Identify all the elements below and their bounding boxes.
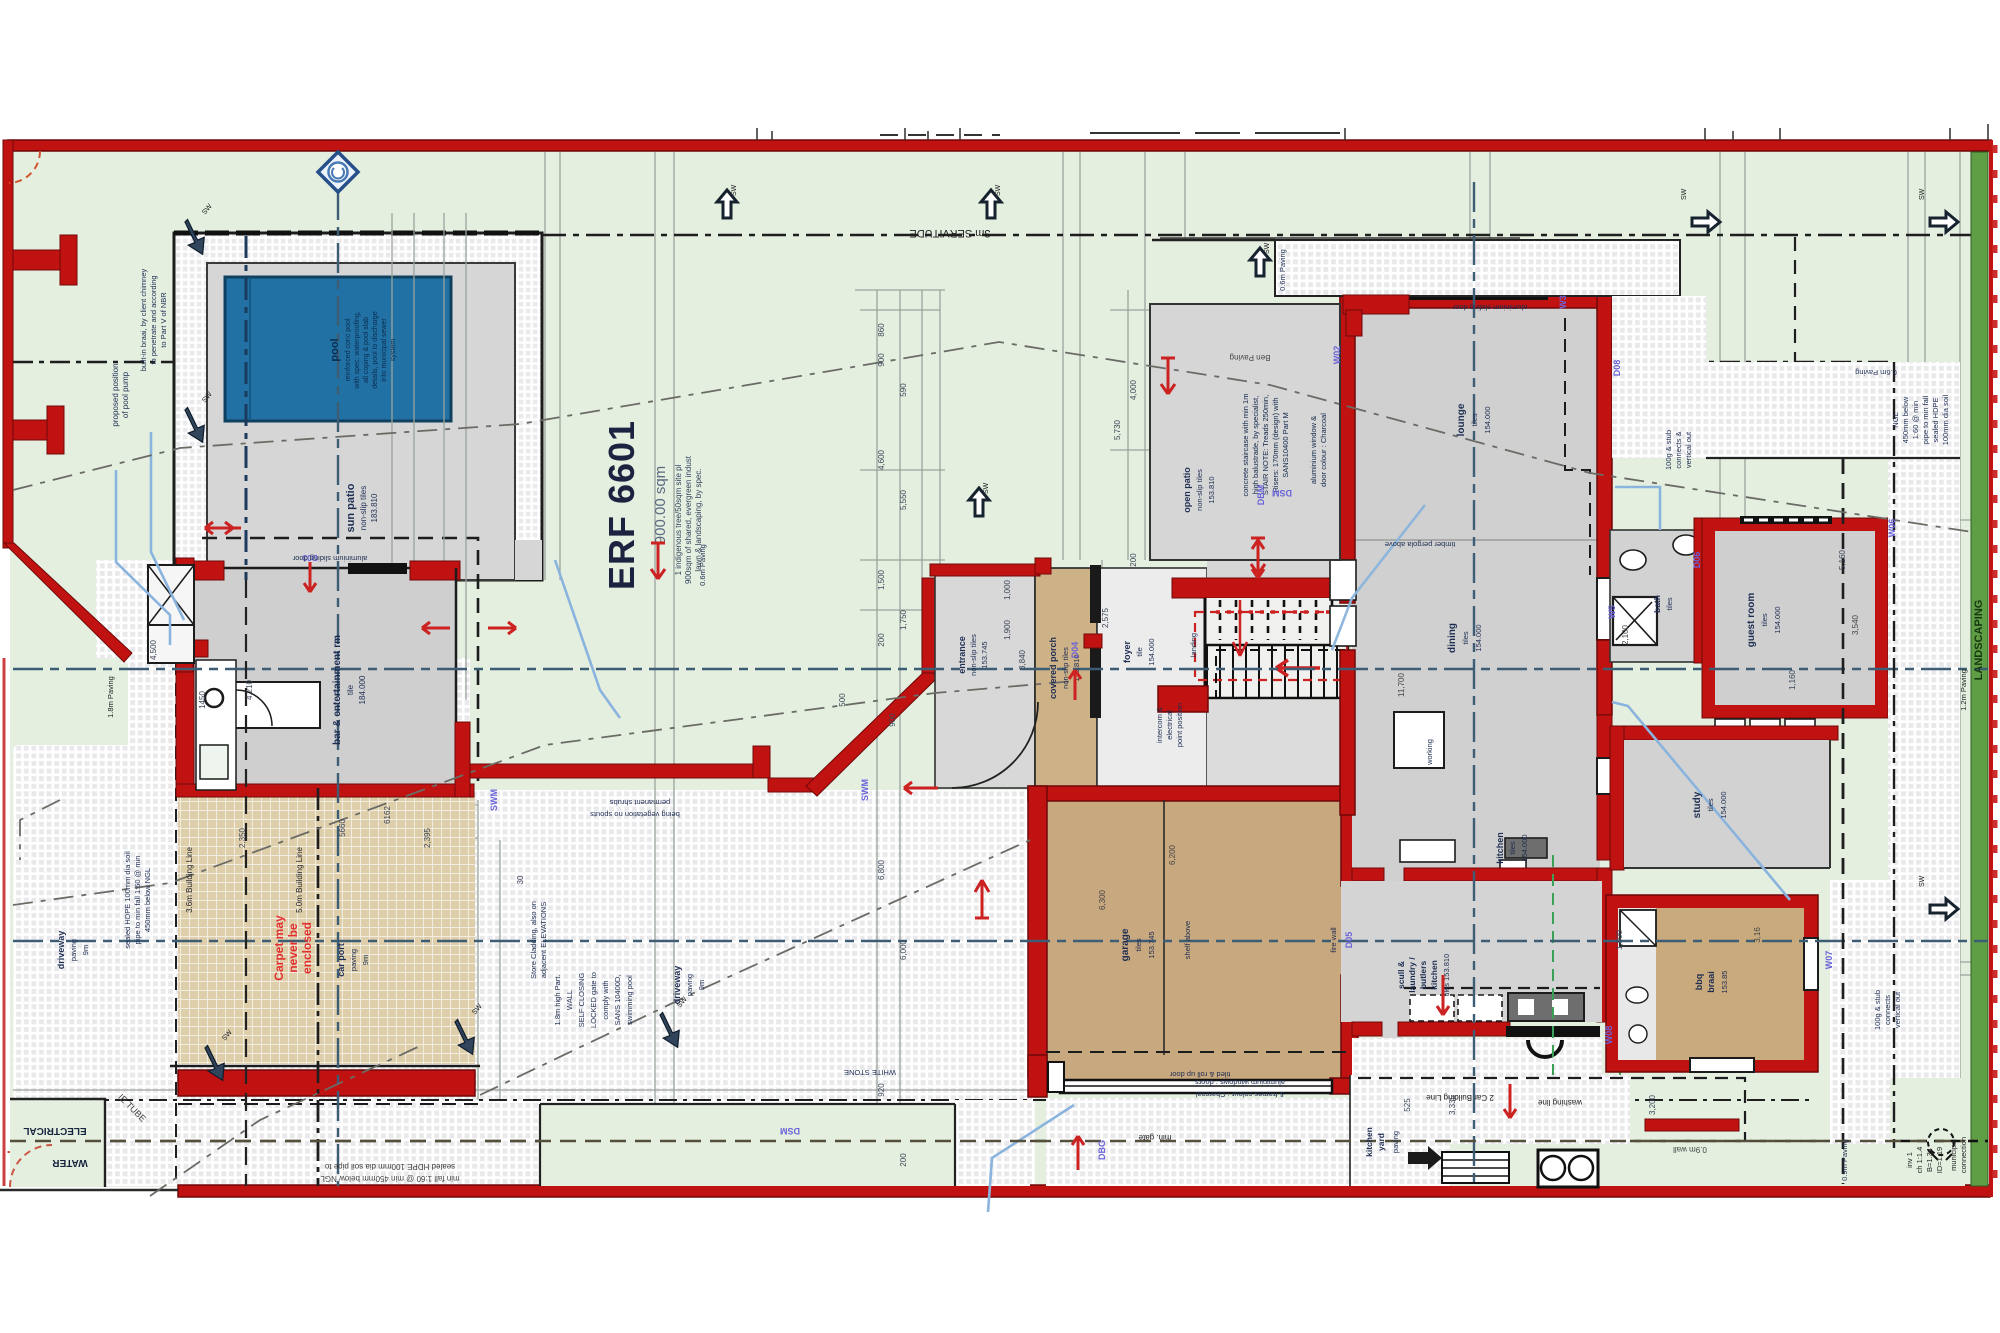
svg-text:5660: 5660 [338, 819, 347, 837]
svg-text:tiles: tiles [1706, 798, 1715, 812]
svg-text:450mm below NGL: 450mm below NGL [143, 868, 152, 932]
svg-text:proposed position: proposed position [111, 363, 120, 426]
svg-text:W3: W3 [1558, 295, 1568, 309]
svg-text:built-in braai, by client chim: built-in braai, by client chimney [139, 268, 148, 371]
svg-text:W5: W5 [1607, 605, 1617, 619]
svg-text:tiles: tiles [1760, 613, 1769, 627]
svg-text:kitchen: kitchen [1495, 832, 1505, 864]
svg-text:WALL: WALL [565, 990, 574, 1010]
svg-text:scull &: scull & [1396, 961, 1406, 989]
svg-text:200: 200 [1129, 553, 1138, 567]
svg-text:open patio: open patio [1182, 467, 1192, 513]
svg-text:electrical: electrical [1165, 710, 1174, 740]
svg-text:details, pool to discharge: details, pool to discharge [372, 311, 379, 389]
svg-text:sealed HDPE: sealed HDPE [1931, 397, 1940, 442]
svg-text:500: 500 [838, 693, 847, 707]
svg-text:aluminium sliding door: aluminium sliding door [292, 554, 367, 563]
svg-text:D06: D06 [1692, 552, 1702, 569]
svg-text:WHITE STONE: WHITE STONE [844, 1068, 896, 1077]
svg-text:pipe to min fall: pipe to min fall [1921, 395, 1930, 444]
svg-text:covered porch: covered porch [1048, 637, 1058, 699]
svg-text:tiles: tiles [1665, 597, 1674, 611]
svg-text:of pool pump: of pool pump [121, 371, 130, 418]
svg-text:braai: braai [1706, 971, 1716, 993]
svg-text:3m SERVITUDE: 3m SERVITUDE [909, 227, 990, 239]
svg-text:being vegetation no spouts: being vegetation no spouts [590, 810, 680, 819]
svg-text:shelf above: shelf above [1183, 921, 1192, 959]
svg-text:183.810: 183.810 [370, 493, 379, 522]
svg-text:30: 30 [516, 875, 525, 884]
svg-text:W08: W08 [1604, 1026, 1614, 1045]
svg-text:kitchen: kitchen [1429, 960, 1439, 990]
svg-text:100mm dia soil: 100mm dia soil [1941, 394, 1950, 445]
svg-text:900: 900 [877, 353, 886, 367]
svg-text:SWM: SWM [860, 779, 870, 801]
svg-text:tiles: tiles [1461, 631, 1470, 645]
svg-text:9m: 9m [361, 955, 370, 965]
svg-text:B=1.34: B=1.34 [1925, 1148, 1934, 1172]
svg-text:sun patio: sun patio [345, 483, 357, 532]
svg-text:fire wall: fire wall [1329, 927, 1338, 953]
svg-text:paving: paving [349, 949, 358, 971]
svg-text:garage: garage [1120, 928, 1131, 961]
svg-text:STAIR NOTE: Treads 250min,: STAIR NOTE: Treads 250min, [1261, 395, 1270, 495]
svg-text:paving: paving [69, 939, 78, 961]
svg-text:0.9m Paving: 0.9m Paving [1840, 1139, 1849, 1181]
svg-text:1450: 1450 [198, 691, 207, 709]
svg-text:1,500: 1,500 [877, 569, 886, 590]
svg-text:525: 525 [1403, 1098, 1412, 1112]
svg-text:860: 860 [877, 323, 886, 337]
svg-text:SELF CLOSING: SELF CLOSING [577, 973, 586, 1028]
svg-text:with spec. waterproofing,: with spec. waterproofing, [354, 311, 361, 389]
svg-text:sealed HDPE 100mm dia soil: sealed HDPE 100mm dia soil [123, 851, 132, 949]
svg-text:154.000: 154.000 [1474, 624, 1483, 651]
svg-text:NGL: NGL [1891, 412, 1900, 427]
svg-text:door colour : Charcoal: door colour : Charcoal [1319, 413, 1328, 487]
svg-text:2,100: 2,100 [1621, 624, 1630, 645]
svg-text:D05: D05 [1344, 932, 1354, 949]
svg-text:2,575: 2,575 [1101, 607, 1110, 628]
svg-text:1,160: 1,160 [1788, 669, 1797, 690]
svg-text:pipe to min fall 1:60 @ min: pipe to min fall 1:60 @ min [133, 856, 142, 945]
svg-text:2 Car Building Line: 2 Car Building Line [1426, 1093, 1494, 1102]
svg-text:100g & stub: 100g & stub [1873, 990, 1882, 1030]
svg-text:5,730: 5,730 [1113, 419, 1122, 440]
svg-text:DBM: DBM [1256, 485, 1266, 506]
svg-text:1,900: 1,900 [1003, 619, 1012, 640]
svg-text:concrete staircase with min 1m: concrete staircase with min 1m [1241, 394, 1250, 497]
svg-text:590: 590 [899, 383, 908, 397]
svg-text:SANS10400 Part M: SANS10400 Part M [1281, 412, 1290, 477]
svg-text:4,000: 4,000 [1129, 379, 1138, 400]
svg-text:1,000: 1,000 [1003, 579, 1012, 600]
svg-text:tile: tile [1135, 647, 1144, 657]
svg-text:timber pergola above: timber pergola above [1385, 540, 1455, 549]
svg-text:& frames colour : Charcoal: & frames colour : Charcoal [1195, 1090, 1284, 1099]
svg-text:6,000: 6,000 [899, 939, 908, 960]
svg-text:foyer: foyer [1122, 641, 1132, 664]
svg-text:DBG: DBG [1097, 1140, 1107, 1160]
svg-text:sealed HDPE 100mm dia soil pip: sealed HDPE 100mm dia soil pipe to [324, 1162, 455, 1171]
svg-text:laundry /: laundry / [1407, 957, 1417, 993]
svg-text:aluminium window &: aluminium window & [1309, 416, 1318, 484]
svg-text:adjacent ELEVATIONS: adjacent ELEVATIONS [539, 902, 548, 978]
svg-text:Risers: 170mm (design) with: Risers: 170mm (design) with [1271, 397, 1280, 492]
svg-text:6,800: 6,800 [877, 859, 886, 880]
svg-text:154.000: 154.000 [1520, 834, 1529, 861]
svg-text:1.8m Paving: 1.8m Paving [106, 676, 115, 718]
svg-text:DSM: DSM [780, 1126, 800, 1136]
svg-text:paving: paving [685, 974, 694, 996]
svg-text:reinforced conc pool: reinforced conc pool [345, 318, 352, 381]
svg-text:non-slip tiles: non-slip tiles [969, 634, 978, 676]
svg-text:ERF 6601: ERF 6601 [601, 420, 642, 590]
svg-text:tiles: tiles [1508, 841, 1517, 855]
svg-text:tiles: tiles [1470, 413, 1479, 427]
svg-text:1,800: 1,800 [1615, 929, 1624, 950]
svg-text:1 indigenous tree/50sqm site: 1 indigenous tree/50sqm site pl [674, 464, 683, 575]
svg-text:dining: dining [1447, 623, 1458, 653]
svg-text:kitchen: kitchen [1364, 1127, 1374, 1157]
svg-text:connection: connection [1959, 1137, 1968, 1173]
svg-text:municipal: municipal [1949, 1139, 1958, 1171]
svg-text:WATER: WATER [52, 1157, 88, 1168]
svg-text:DSM: DSM [1272, 488, 1292, 498]
svg-text:guest room: guest room [1746, 593, 1757, 648]
svg-text:4,500: 4,500 [149, 639, 158, 660]
svg-text:D08: D08 [1612, 360, 1622, 377]
svg-text:154.000: 154.000 [1773, 606, 1782, 633]
svg-text:1,750: 1,750 [899, 609, 908, 630]
svg-text:SANS 10400D,: SANS 10400D, [613, 975, 622, 1026]
svg-text:5,550: 5,550 [899, 489, 908, 510]
svg-text:0.6m Paving: 0.6m Paving [698, 544, 707, 586]
svg-text:butlers: butlers [1418, 961, 1428, 990]
svg-text:vertical out: vertical out [1893, 991, 1902, 1028]
svg-text:1:60 @ min: 1:60 @ min [1911, 401, 1920, 439]
svg-text:11,700: 11,700 [1397, 673, 1406, 697]
svg-text:2,350: 2,350 [238, 827, 247, 848]
svg-text:6,200: 6,200 [1168, 844, 1177, 865]
svg-text:permanent shrubs: permanent shrubs [610, 798, 671, 807]
svg-text:car port: car port [336, 943, 346, 977]
svg-text:184.000: 184.000 [358, 675, 367, 704]
svg-text:153.745: 153.745 [1147, 931, 1156, 958]
svg-text:D04: D04 [1070, 642, 1080, 659]
svg-text:study: study [1692, 791, 1703, 818]
svg-text:6162: 6162 [383, 806, 392, 824]
svg-text:154.000: 154.000 [1483, 406, 1492, 433]
svg-text:point position: point position [1175, 703, 1184, 747]
svg-text:4,600: 4,600 [877, 449, 886, 470]
svg-text:into municipal sewer: into municipal sewer [381, 318, 388, 382]
svg-text:yard: yard [1376, 1133, 1386, 1151]
svg-text:Carpet may: Carpet may [272, 915, 286, 981]
svg-text:to Part V of NBR: to Part V of NBR [159, 292, 168, 348]
svg-text:3,840: 3,840 [1018, 649, 1027, 670]
svg-text:SW: SW [1919, 188, 1926, 200]
svg-text:900: 900 [888, 713, 897, 727]
svg-text:ELECTRICAL: ELECTRICAL [23, 1125, 86, 1136]
svg-text:0.6m Paving: 0.6m Paving [1278, 249, 1287, 291]
svg-text:5,160: 5,160 [1838, 549, 1847, 570]
svg-text:system: system [390, 339, 397, 361]
svg-text:900sqm of shared, evergreen in: 900sqm of shared, evergreen indust [684, 455, 693, 584]
svg-text:non-slip tiles: non-slip tiles [359, 486, 368, 530]
svg-text:2,395: 2,395 [423, 827, 432, 848]
svg-text:900.00 sqm: 900.00 sqm [652, 466, 669, 544]
svg-text:entrance: entrance [957, 636, 967, 674]
svg-text:ch 1:1.4: ch 1:1.4 [1915, 1147, 1924, 1174]
svg-text:swimming pool: swimming pool [625, 975, 634, 1025]
svg-text:vertical out: vertical out [1684, 431, 1693, 468]
svg-text:tiled & roll up door: tiled & roll up door [1169, 1070, 1230, 1079]
svg-text:LANDSCAPING: LANDSCAPING [1973, 600, 1985, 681]
svg-text:SWM: SWM [489, 789, 499, 811]
svg-text:bbq: bbq [1694, 974, 1704, 991]
svg-text:working: working [1425, 739, 1434, 766]
svg-text:4,210: 4,210 [245, 679, 254, 700]
svg-text:connects: connects [1883, 995, 1892, 1025]
svg-text:9m: 9m [697, 980, 706, 990]
svg-text:SW: SW [1919, 875, 1926, 887]
svg-text:154.000: 154.000 [1719, 791, 1728, 818]
svg-text:3,16: 3,16 [1753, 927, 1762, 943]
svg-text:non-slip tiles: non-slip tiles [1195, 469, 1204, 511]
svg-text:inv 1: inv 1 [1905, 1152, 1914, 1168]
svg-text:0.9m wall: 0.9m wall [1673, 1145, 1707, 1154]
svg-text:Store Cladding, also on: Store Cladding, also on [529, 901, 538, 979]
svg-text:pool: pool [329, 338, 341, 361]
svg-text:LOCKED gate to: LOCKED gate to [589, 972, 598, 1028]
svg-text:3.6m Building Line: 3.6m Building Line [185, 847, 194, 913]
svg-text:never be: never be [286, 923, 300, 973]
svg-text:tiles: tiles [1134, 938, 1143, 952]
svg-text:aluminium windows : doors: aluminium windows : doors [1195, 1078, 1285, 1087]
svg-text:3,335: 3,335 [1448, 1094, 1457, 1115]
svg-text:min. gate: min. gate [1138, 1133, 1171, 1142]
svg-text:200: 200 [899, 1153, 908, 1167]
svg-text:washing line: washing line [1537, 1098, 1583, 1107]
svg-text:1.2m Paving: 1.2m Paving [1959, 669, 1968, 711]
svg-text:comply with: comply with [601, 980, 610, 1019]
svg-text:450mm below: 450mm below [1901, 396, 1910, 443]
svg-text:ID=1.19: ID=1.19 [1935, 1147, 1944, 1173]
svg-text:W02: W02 [1332, 346, 1342, 365]
svg-text:bath: bath [1652, 595, 1662, 613]
svg-text:tile: tile [346, 684, 355, 695]
svg-text:Ben Paving: Ben Paving [1230, 353, 1271, 362]
svg-text:1.8m high Part.: 1.8m high Part. [553, 975, 562, 1026]
svg-text:W07: W07 [1824, 951, 1834, 970]
svg-text:enclosed: enclosed [300, 922, 314, 974]
svg-text:153.810: 153.810 [1207, 476, 1216, 503]
svg-text:SW: SW [1681, 188, 1688, 200]
svg-text:non-slip tiles: non-slip tiles [1061, 647, 1070, 689]
svg-text:154.000: 154.000 [1147, 638, 1156, 665]
svg-text:all coping & pool slab: all coping & pool slab [363, 317, 370, 383]
svg-text:153.85: 153.85 [1720, 971, 1729, 994]
svg-text:min fall 1:60 @ min 450mm belo: min fall 1:60 @ min 450mm below NGL [320, 1174, 460, 1183]
svg-text:connects &: connects & [1674, 431, 1683, 468]
svg-text:153.745: 153.745 [980, 641, 989, 668]
svg-text:landing: landing [1189, 633, 1198, 657]
svg-text:intercom &: intercom & [1155, 707, 1164, 743]
svg-text:bar & entertainment rm: bar & entertainment rm [332, 635, 343, 745]
svg-text:to penetrate and according: to penetrate and according [149, 275, 158, 364]
svg-text:100g & stub: 100g & stub [1664, 430, 1673, 470]
svg-text:920: 920 [877, 1083, 886, 1097]
svg-text:5.0m Building Line: 5.0m Building Line [295, 847, 304, 913]
svg-text:3,200: 3,200 [1648, 1094, 1657, 1115]
svg-text:9m: 9m [81, 945, 90, 955]
svg-text:W06: W06 [1887, 519, 1897, 538]
svg-text:3,540: 3,540 [1851, 614, 1860, 635]
svg-text:paving: paving [1391, 1131, 1400, 1153]
svg-text:0.6m Paving: 0.6m Paving [1855, 368, 1897, 377]
svg-text:high balustrade, by specialist: high balustrade, by specialist, [1251, 396, 1260, 494]
svg-text:aluminium sliding door: aluminium sliding door [1452, 303, 1527, 312]
svg-text:6,300: 6,300 [1098, 889, 1107, 910]
svg-text:driveway: driveway [56, 931, 66, 970]
svg-text:200: 200 [877, 633, 886, 647]
svg-text:lounge: lounge [1456, 403, 1467, 436]
